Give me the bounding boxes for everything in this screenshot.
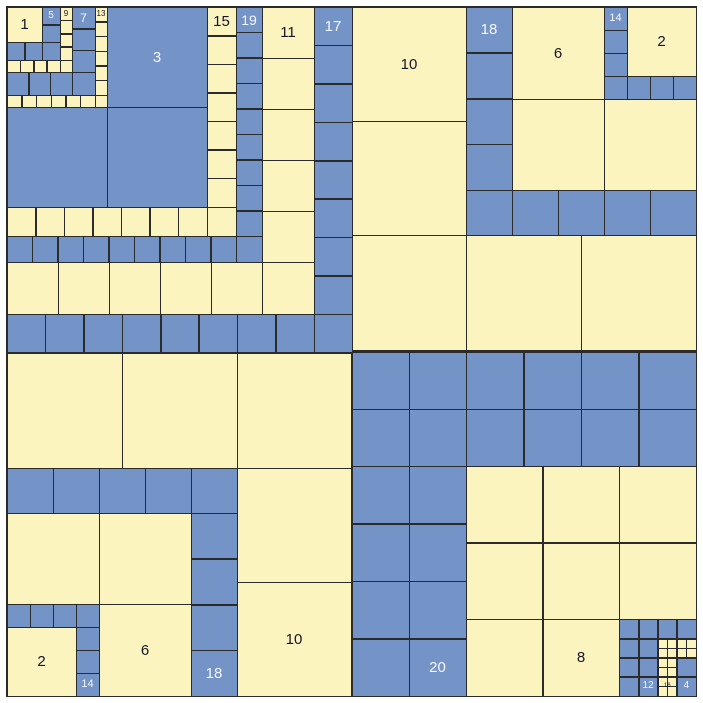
tile-cell [237,314,276,353]
tile-cell [150,207,179,237]
tile-cell [276,314,315,353]
tile-cell [42,7,61,25]
tile-cell [99,604,192,697]
tile-cell [109,236,135,263]
tile-cell [409,524,467,582]
tile-cell [207,64,237,93]
tile-cell [466,7,513,53]
tile-cell [7,627,77,697]
tile-cell [604,99,697,191]
tile-cell [34,60,48,73]
tile-cell [207,150,237,179]
tile-cell [409,581,467,639]
tile-cell [466,190,513,236]
tile-cell [211,236,237,263]
tile-cell [93,207,122,237]
tile-cell [524,409,582,467]
tile-cell [466,619,543,696]
tile-cell [314,84,353,123]
tile-cell [7,353,123,469]
tile-cell [7,95,22,108]
tile-cell [409,409,467,467]
tile-cell [7,262,59,315]
tile-cell [60,7,73,21]
tile-cell [7,468,54,514]
tile-cell [76,673,100,697]
tile-cell [7,314,46,353]
tile-cell [107,7,208,108]
tile-cell [466,99,513,145]
tile-cell [7,42,25,61]
tile-cell [60,20,73,34]
tile-cell [466,409,524,467]
tile-cell [122,353,238,469]
tile-cell [352,524,410,582]
tile-cell [42,25,61,43]
tile-cell [95,36,108,51]
tile-cell [107,107,208,208]
tile-cell [134,236,160,263]
tile-cell [466,144,513,190]
tile-cell [36,95,51,108]
tile-cell [236,236,263,263]
tile-cell [236,83,263,109]
tile-cell [604,30,628,54]
tile-cell [236,58,263,84]
tile-cell [207,207,237,237]
tile-cell [639,677,659,697]
tile-cell [314,276,353,315]
tile-cell [36,207,65,237]
tile-cell [619,639,639,659]
tile-cell [122,314,161,353]
tile-cell [191,468,238,514]
tile-cell [207,36,237,65]
tile-cell [352,235,467,351]
tile-cell [604,7,628,31]
tile-cell [99,513,192,605]
tile-cell [191,559,238,605]
tile-cell [72,72,96,96]
tile-cell [314,7,353,46]
tile-cell [207,93,237,122]
tile-cell [604,190,651,236]
tile-cell [352,7,467,122]
tile-cell [66,95,81,108]
tile-cell [314,161,353,200]
tile-cell [639,639,659,659]
tile-cell [121,207,150,237]
tile-cell [7,7,43,43]
tile-cell [466,235,582,351]
tile-cell [512,7,605,100]
tile-cell [160,262,212,315]
tile-cell [7,513,100,605]
tile-cell [7,207,36,237]
tile-cell [237,582,352,697]
tile-cell [207,7,237,36]
tile-cell [236,160,263,186]
tile-cell [83,236,109,263]
tile-cell [352,581,410,639]
tile-cell [262,58,315,110]
tile-cell [543,619,620,696]
tile-cell [677,658,697,678]
tile-cell [211,262,263,315]
tile-cell [191,605,238,651]
tile-cell [20,60,34,73]
tile-cell [22,95,37,108]
tile-cell [581,352,639,410]
tile-cell [191,513,238,559]
tile-cell [639,352,697,410]
tile-cell [619,466,696,543]
tile-cell [51,95,66,108]
tile-cell [314,45,353,84]
tile-cell [7,72,29,96]
tile-cell [352,121,467,236]
tile-cell [619,619,639,639]
tile-cell [58,262,110,315]
tile-cell [352,639,410,697]
tile-cell [262,262,315,315]
tile-cell [650,76,674,100]
tile-cell [524,352,582,410]
tile-cell [95,66,108,81]
tile-cell [72,7,96,29]
tile-cell [76,604,100,628]
tile-cell [677,677,697,697]
tile-cell [160,236,186,263]
tile-cell [76,627,100,651]
square-tiling-diagram: 159713315191117101861422146181020812164 [0,0,703,703]
tile-cell [236,7,263,33]
tile-cell [50,72,72,96]
tile-cell [58,236,84,263]
tile-cell [185,236,211,263]
tile-cell [178,207,207,237]
tile-cell [314,199,353,238]
tile-cell [76,650,100,674]
tile-cell [409,352,467,410]
tile-cell [619,543,696,620]
tile-cell [604,76,628,100]
tile-cell [466,543,543,620]
tile-cell [95,7,108,22]
tile-cell [95,51,108,66]
tile-cell [84,314,123,353]
tile-cell [352,466,410,524]
tile-cell [236,134,263,160]
tile-cell [80,95,95,108]
tile-cell [619,677,639,697]
tile-cell [30,604,54,628]
tile-cell [237,353,352,469]
tile-cell [60,60,73,73]
tile-cell [673,76,697,100]
tile-cell [466,352,524,410]
tile-cell [627,76,651,100]
tile-cell [658,619,678,639]
tile-cell [199,314,238,353]
tile-cell [45,314,84,353]
tile-cell [352,352,410,410]
tile-cell [236,32,263,58]
tile-cell [543,466,620,543]
tile-cell [99,468,146,514]
tile-cell [95,95,108,108]
tile-cell [7,236,33,263]
tile-cell [191,650,238,696]
tile-cell [581,409,639,467]
tile-cell [109,262,161,315]
tile-cell [47,60,61,73]
tile-cell [207,121,237,150]
tile-cell [409,466,467,524]
tile-cell [7,107,108,208]
tile-cell [262,7,315,59]
tile-cell [95,22,108,37]
tile-cell [512,190,559,236]
tile-cell [32,236,58,263]
tile-cell [543,543,620,620]
tile-cell [236,185,263,211]
tile-cell [314,122,353,161]
tile-cell [314,314,353,353]
tile-cell [29,72,51,96]
tile-cell [352,409,410,467]
tile-cell [7,60,21,73]
tile-cell [677,619,697,639]
tile-cell [95,80,108,95]
tile-cell [581,235,697,351]
tile-cell [7,604,31,628]
tile-cell [558,190,605,236]
tile-cell [161,314,200,353]
tile-cell [60,34,73,48]
tile-cell [512,99,605,191]
tile-cell [207,178,237,207]
tile-cell [639,658,659,678]
tile-cell [466,53,513,99]
tile-cell [53,468,100,514]
tile-cell [627,7,697,77]
tile-cell [236,109,263,135]
tile-cell [72,29,96,51]
tile-cell [262,160,315,212]
tile-cell [604,53,628,77]
tile-cell [639,619,659,639]
tile-cell [53,604,77,628]
tile-cell [236,211,263,237]
tile-cell [60,47,73,61]
tile-cell [314,237,353,276]
tile-cell [639,409,697,467]
tile-cell [466,466,543,543]
tile-cell [64,207,93,237]
tile-cell [72,50,96,72]
tile-cell [262,109,315,161]
tile-cell [409,639,467,697]
tile-cell [25,42,43,61]
tile-cell [262,211,315,263]
tile-cell [145,468,192,514]
tile-cell [42,42,61,61]
tile-cell [619,658,639,678]
tile-cell [237,468,352,583]
tile-cell [650,190,697,236]
